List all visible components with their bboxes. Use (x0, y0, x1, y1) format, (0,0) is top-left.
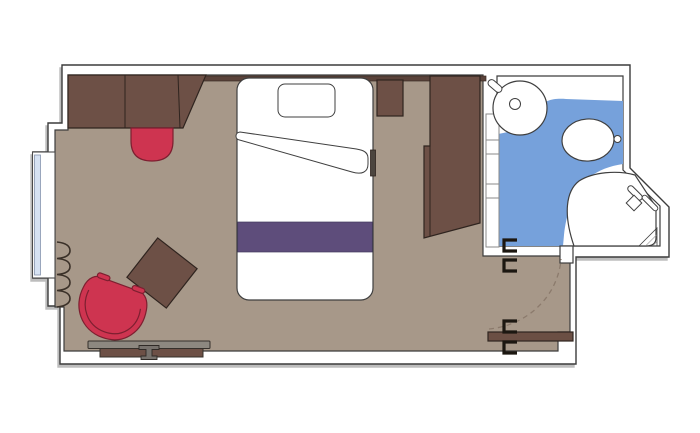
shelf-unit (486, 114, 499, 247)
bed-runner (238, 222, 373, 252)
window-glass (35, 155, 41, 275)
window (33, 152, 56, 278)
washbasin-drain (510, 99, 521, 110)
pillow (278, 84, 335, 117)
sofa (68, 75, 206, 128)
single-bed (236, 78, 373, 300)
flush-button (614, 136, 621, 143)
desk (88, 341, 210, 360)
wall-stub (560, 246, 573, 263)
nightstand (377, 80, 403, 116)
coffee-table (131, 128, 173, 161)
bedside-ledge (371, 150, 376, 176)
floor-plan-canvas (0, 0, 700, 433)
floor-plan-page (0, 0, 700, 433)
entry-door (488, 332, 573, 341)
wardrobe (424, 76, 480, 238)
